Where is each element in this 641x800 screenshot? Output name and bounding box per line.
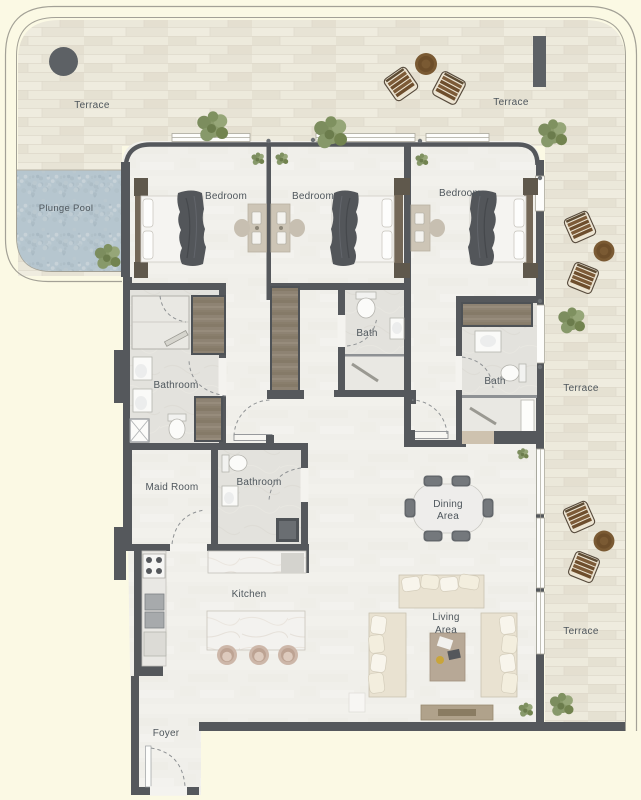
svg-text:Terrace: Terrace bbox=[74, 100, 110, 111]
svg-text:Area: Area bbox=[437, 511, 459, 522]
svg-text:Bedroom: Bedroom bbox=[439, 188, 481, 199]
svg-text:Terrace: Terrace bbox=[563, 383, 599, 394]
svg-text:Plunge Pool: Plunge Pool bbox=[39, 203, 94, 214]
svg-text:Bathroom: Bathroom bbox=[237, 477, 282, 488]
svg-text:Bedroom: Bedroom bbox=[292, 191, 334, 202]
svg-text:Bedroom: Bedroom bbox=[205, 191, 247, 202]
svg-text:Bathroom: Bathroom bbox=[154, 380, 199, 391]
svg-text:Living: Living bbox=[432, 612, 459, 623]
svg-text:Maid Room: Maid Room bbox=[146, 482, 199, 493]
svg-text:Bath: Bath bbox=[484, 376, 505, 387]
svg-text:Terrace: Terrace bbox=[563, 626, 599, 637]
svg-text:Dining: Dining bbox=[433, 499, 463, 510]
svg-text:Kitchen: Kitchen bbox=[232, 589, 267, 600]
svg-text:Foyer: Foyer bbox=[153, 728, 180, 739]
svg-text:Terrace: Terrace bbox=[493, 97, 529, 108]
svg-text:Area: Area bbox=[435, 625, 457, 636]
